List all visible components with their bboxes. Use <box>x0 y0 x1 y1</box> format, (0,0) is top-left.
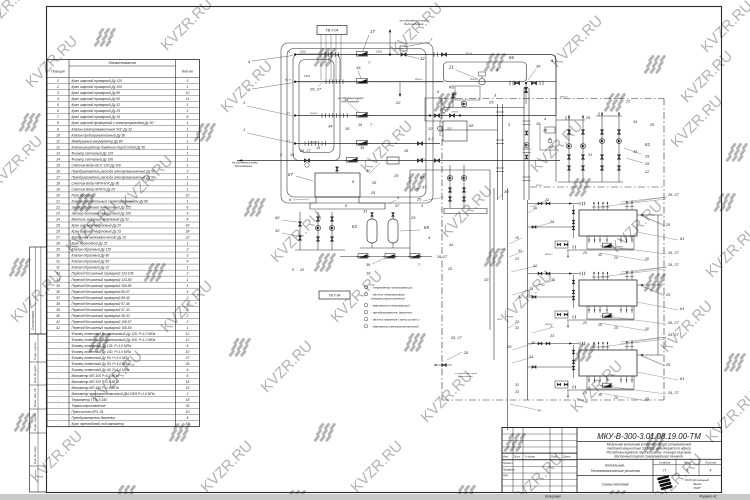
svg-text:8: 8 <box>57 121 59 125</box>
svg-text:Согласовано: Согласовано <box>31 311 35 330</box>
svg-text:1: 1 <box>187 121 189 125</box>
svg-text:34: 34 <box>328 124 333 129</box>
svg-text:18: 18 <box>56 181 60 185</box>
svg-text:41: 41 <box>533 264 537 268</box>
svg-text:22: 22 <box>185 236 190 240</box>
svg-text:4: 4 <box>544 117 546 121</box>
svg-text:3: 3 <box>187 254 189 258</box>
svg-text:Кран шаровой фланцевый с элек: Кран шаровой фланцевый с электроприводом… <box>72 121 154 125</box>
svg-text:К6: К6 <box>509 55 514 60</box>
svg-text:5: 5 <box>57 103 59 107</box>
svg-text:Ø89х3,5: Ø89х3,5 <box>469 79 478 81</box>
svg-text:Ø89х3,5: Ø89х3,5 <box>544 324 553 326</box>
svg-text:1: 1 <box>57 79 59 83</box>
svg-text:Ø108: Ø108 <box>499 249 506 251</box>
svg-text:Ø76х3: Ø76х3 <box>451 112 459 114</box>
svg-text:Ø76х3: Ø76х3 <box>535 185 543 187</box>
svg-text:Фланец ответный Воротниковый: Фланец ответный Воротниковый Ду 125, Р=1… <box>72 332 156 336</box>
svg-text:Дата: Дата <box>563 455 571 459</box>
svg-text:19: 19 <box>56 187 60 191</box>
svg-text:Изм.: Изм. <box>503 455 509 459</box>
svg-text:4: 4 <box>187 218 189 222</box>
svg-text:26, 27: 26, 27 <box>309 87 322 92</box>
svg-text:35: 35 <box>345 126 350 131</box>
svg-text:Счетчик Воды WPH-N-K Ду: Счетчик Воды WPH-N-K Ду 80 <box>72 181 120 185</box>
svg-text:33: 33 <box>507 344 512 349</box>
svg-text:Взам. инв. №: Взам. инв. № <box>33 388 37 407</box>
svg-text:25: 25 <box>451 91 457 96</box>
svg-text:24: 24 <box>528 287 533 291</box>
svg-text:20: 20 <box>644 257 649 261</box>
svg-text:25: 25 <box>665 363 671 367</box>
svg-text:Манометр электроконтактный Д: Манометр электроконтактный ДМ-2005 Р=1,0… <box>72 392 155 396</box>
svg-text:16: 16 <box>536 122 540 126</box>
svg-text:26: 26 <box>185 362 190 366</box>
svg-text:35: 35 <box>56 284 60 288</box>
svg-text:6: 6 <box>187 374 189 378</box>
svg-text:ГИП: ГИП <box>503 474 508 478</box>
svg-text:10: 10 <box>515 236 519 240</box>
svg-text:11: 11 <box>56 139 60 143</box>
svg-text:32: 32 <box>275 228 280 233</box>
svg-text:20: 20 <box>299 268 304 272</box>
svg-text:Водоснабжение: Водоснабжение <box>404 22 424 26</box>
svg-text:Переход бесшовный приварной: Переход бесшовный приварной 38-32 <box>72 314 130 318</box>
svg-text:35: 35 <box>551 278 555 282</box>
svg-text:2: 2 <box>186 272 189 276</box>
svg-text:Подп.: Подп. <box>551 455 558 459</box>
svg-text:15: 15 <box>56 163 60 167</box>
svg-text:10: 10 <box>186 91 190 95</box>
svg-text:Ø89х3,5: Ø89х3,5 <box>544 254 553 256</box>
svg-text:6: 6 <box>187 206 189 210</box>
svg-text:Затвор дисковый поворотный Ду: Затвор дисковый поворотный Ду 125 <box>72 206 132 210</box>
svg-text:20: 20 <box>644 397 649 401</box>
svg-text:Копировал: Копировал <box>545 494 561 498</box>
svg-text:13: 13 <box>56 151 60 155</box>
svg-text:1: 1 <box>243 100 245 105</box>
svg-text:Мембранный аккумулятор Ду 80: Мембранный аккумулятор Ду 80 <box>72 139 123 143</box>
svg-text:24: 24 <box>55 218 60 222</box>
svg-text:Лист: Лист <box>683 460 692 464</box>
svg-text:Клапан обратный Ду 80: Клапан обратный Ду 80 <box>72 254 110 258</box>
svg-text:1: 1 <box>187 175 189 179</box>
svg-text:2: 2 <box>186 314 189 318</box>
svg-text:7: 7 <box>57 115 59 119</box>
svg-text:31: 31 <box>588 153 592 157</box>
svg-text:4: 4 <box>187 302 189 306</box>
svg-text:35: 35 <box>598 253 602 257</box>
svg-text:30: 30 <box>56 254 60 258</box>
svg-text:1: 1 <box>187 326 189 330</box>
svg-text:31: 31 <box>518 295 522 299</box>
svg-text:К3: К3 <box>352 224 357 229</box>
svg-text:0,5х3: 0,5х3 <box>300 51 307 54</box>
svg-text:25: 25 <box>416 198 422 202</box>
svg-text:31: 31 <box>515 383 519 387</box>
svg-text:25: 25 <box>393 173 399 178</box>
svg-text:10: 10 <box>186 193 190 197</box>
svg-text:37: 37 <box>422 185 427 190</box>
svg-text:Стадия: Стадия <box>659 460 671 464</box>
svg-text:в 1 т: в 1 т <box>285 79 291 82</box>
svg-text:28: 28 <box>371 181 377 185</box>
svg-text:9: 9 <box>57 127 59 131</box>
svg-text:Затвор дисковый поворотный Ду: Затвор дисковый поворотный Ду 100 <box>72 212 132 216</box>
svg-text:1: 1 <box>187 133 189 137</box>
svg-text:10: 10 <box>56 133 60 137</box>
svg-text:К7: К7 <box>288 172 293 177</box>
svg-text:Клапан регулятор давления пере: Клапан регулятор давления перед собой Ду… <box>72 145 146 149</box>
svg-text:1: 1 <box>187 157 189 161</box>
svg-text:Позиция: Позиция <box>51 70 65 74</box>
svg-text:Водоснабжение: Водоснабжение <box>458 375 474 378</box>
svg-text:(термосопротивление): (термосопротивление) <box>371 297 405 301</box>
svg-text:1: 1 <box>187 151 189 155</box>
svg-text:Фильтр сетчатый Ду 125: Фильтр сетчатый Ду 125 <box>72 151 114 155</box>
svg-text:26, 27: 26, 27 <box>667 391 679 395</box>
svg-text:1: 1 <box>187 85 189 89</box>
svg-text:26, 27: 26, 27 <box>299 149 311 153</box>
svg-text:10: 10 <box>186 410 190 414</box>
svg-text:25: 25 <box>585 116 591 120</box>
svg-text:23: 23 <box>55 212 60 216</box>
svg-text:25: 25 <box>613 326 618 330</box>
svg-text:Водоснабжение: Водоснабжение <box>235 165 253 168</box>
svg-text:Наименование: Наименование <box>108 60 136 65</box>
svg-text:22: 22 <box>55 206 60 210</box>
svg-text:30: 30 <box>504 189 509 194</box>
svg-text:Ø133х4: Ø133х4 <box>309 141 318 144</box>
svg-text:42: 42 <box>56 326 60 330</box>
svg-text:21: 21 <box>448 65 454 70</box>
svg-text:38: 38 <box>549 145 553 149</box>
svg-text:25: 25 <box>582 251 587 255</box>
svg-text:23: 23 <box>544 198 549 202</box>
svg-text:16: 16 <box>356 65 361 70</box>
svg-text:Лист: Лист <box>513 455 522 459</box>
svg-text:Кран шаровой муфтовый Ду 15: Кран шаровой муфтовый Ду 15 <box>72 230 122 234</box>
svg-text:Кран шаровой приварной Ду 125: Кран шаровой приварной Ду 125 <box>72 79 123 83</box>
svg-text:Кран переходной Ду 25: Кран переходной Ду 25 <box>72 242 108 246</box>
svg-text:Воздушник автоматический Ду: Воздушник автоматический Ду 15 <box>72 236 127 240</box>
svg-text:Ø57х3: Ø57х3 <box>465 53 473 55</box>
svg-text:24: 24 <box>549 220 554 224</box>
svg-text:Манометр МП-100 Р=1,0 МПа: Манометр МП-100 Р=1,0 МПа <box>72 380 119 384</box>
svg-text:1: 1 <box>187 284 189 288</box>
svg-text:35: 35 <box>531 341 535 345</box>
svg-text:Манометр МП-160 Р=1,0 МПа: Манометр МП-160 Р=1,0 МПа <box>72 386 119 390</box>
svg-text:1: 1 <box>187 103 189 107</box>
svg-text:39: 39 <box>56 308 60 312</box>
svg-text:16: 16 <box>344 97 349 102</box>
svg-text:Фланец ответный Ду 80, Р=1: Фланец ответный Ду 80, Р=1,0 МПа <box>72 356 130 360</box>
svg-text:28: 28 <box>55 242 60 246</box>
svg-text:25: 25 <box>644 162 650 166</box>
svg-text:35: 35 <box>533 206 537 210</box>
svg-text:11: 11 <box>366 169 370 173</box>
svg-text:28: 28 <box>185 230 190 234</box>
svg-text:Преобразователь расхода элек: Преобразователь расхода электромагнитный… <box>72 169 155 173</box>
svg-text:20: 20 <box>644 327 649 331</box>
svg-text:2: 2 <box>186 392 189 396</box>
svg-text:Кран шаровой приварной Ду 100: Кран шаровой приварной Ду 100 <box>72 85 123 89</box>
svg-text:12: 12 <box>420 56 425 61</box>
svg-text:Клапан смесительный с электр: Клапан смесительный с электроприводом Ду… <box>72 200 149 204</box>
svg-text:Кран шаровой приварной Ду 50: Кран шаровой приварной Ду 50 <box>72 97 121 101</box>
svg-text:25: 25 <box>613 256 618 260</box>
svg-text:3: 3 <box>57 91 59 95</box>
svg-text:Кран трехходовой под маноме: Кран трехходовой под манометр <box>72 422 124 426</box>
svg-text:К5: К5 <box>420 175 425 180</box>
svg-text:2: 2 <box>56 85 59 89</box>
svg-text:Инв. № дубл.: Инв. № дубл. <box>33 364 37 383</box>
svg-text:25: 25 <box>582 321 587 325</box>
svg-text:17: 17 <box>370 29 375 34</box>
svg-text:23: 23 <box>549 334 554 338</box>
svg-text:Подп. и дата: Подп. и дата <box>33 413 37 431</box>
svg-text:6: 6 <box>345 204 347 208</box>
svg-text:42: 42 <box>186 224 190 228</box>
svg-text:0,5х3: 0,5х3 <box>376 51 383 54</box>
svg-text:Переход бесшовный приварной: Переход бесшовный приварной 108-89 <box>72 284 132 288</box>
svg-text:11: 11 <box>186 97 190 101</box>
svg-text:2: 2 <box>186 109 189 113</box>
svg-text:Переход бесшовный приварной: Переход бесшовный приварной 89-45 <box>72 296 130 300</box>
svg-text:0,5х3: 0,5х3 <box>304 75 311 78</box>
svg-text:Котельная.: Котельная. <box>605 464 625 468</box>
svg-text:4: 4 <box>57 97 59 101</box>
svg-text:- манометр электроконтактный: - манометр электроконтактный <box>371 325 419 329</box>
svg-text:6: 6 <box>187 344 189 348</box>
svg-text:21: 21 <box>55 200 60 204</box>
svg-text:Клапан электромагнитный “НЗ”: Клапан электромагнитный “НЗ” Ду 32 <box>72 127 133 131</box>
svg-text:8: 8 <box>187 416 189 420</box>
svg-text:К1: К1 <box>680 236 685 241</box>
svg-text:Фильтр сетчатый Ду 100: Фильтр сетчатый Ду 100 <box>72 157 114 161</box>
svg-text:12: 12 <box>186 332 190 336</box>
svg-text:16: 16 <box>56 169 60 173</box>
svg-text:35: 35 <box>598 393 602 397</box>
svg-text:Проверил: Проверил <box>503 467 515 471</box>
svg-text:4: 4 <box>187 290 189 294</box>
svg-text:Переход бесшовный приварной: Переход бесшовный приварной 108-89 <box>72 326 132 330</box>
svg-text:Прессостат КРL-35: Прессостат КРL-35 <box>72 410 104 414</box>
svg-text:1: 1 <box>187 187 189 191</box>
svg-text:Счетчик Воды ВСХ -100 Ду: Счетчик Воды ВСХ -100 Ду 100 <box>72 163 121 167</box>
svg-text:Переход бесшовный приварной: Переход бесшовный приварной 57-45 <box>72 302 130 306</box>
svg-text:Формат А2: Формат А2 <box>699 494 717 498</box>
svg-text:1: 1 <box>187 242 189 246</box>
svg-text:29: 29 <box>644 155 650 159</box>
svg-text:4: 4 <box>710 469 712 473</box>
svg-text:14: 14 <box>290 153 294 157</box>
svg-text:25: 25 <box>410 215 416 220</box>
svg-text:5: 5 <box>292 268 294 272</box>
svg-text:Листов: Листов <box>704 460 716 464</box>
svg-text:25: 25 <box>488 100 494 105</box>
svg-text:Преобразователь давления: Преобразователь давления <box>72 416 116 420</box>
svg-text:Реле протока: Реле протока <box>72 193 94 197</box>
svg-text:Ø89х3,5: Ø89х3,5 <box>414 79 423 81</box>
svg-text:10: 10 <box>186 350 190 354</box>
svg-text:37: 37 <box>56 296 60 300</box>
svg-text:1: 1 <box>187 200 189 204</box>
svg-text:26, 27: 26, 27 <box>667 251 679 255</box>
svg-text:1: 1 <box>187 266 189 270</box>
svg-text:25: 25 <box>649 123 655 127</box>
svg-text:- манометр показывающий: - манометр показывающий <box>371 304 410 308</box>
svg-text:3: 3 <box>187 169 189 173</box>
svg-text:14: 14 <box>56 157 60 161</box>
svg-text:Переход бесшовный приварной: Переход бесшовный приварной 133-108 <box>72 272 134 276</box>
svg-text:33: 33 <box>56 272 60 276</box>
svg-text:31: 31 <box>363 210 367 214</box>
svg-text:18: 18 <box>186 398 190 402</box>
svg-text:32: 32 <box>56 266 60 270</box>
svg-text:4 2: 4 2 <box>428 136 434 141</box>
svg-text:8: 8 <box>187 115 189 119</box>
svg-text:1: 1 <box>187 163 189 167</box>
svg-text:Инв. № подл.: Инв. № подл. <box>33 445 37 464</box>
svg-text:2: 2 <box>186 296 189 300</box>
svg-text:Преобразователь расхода элек: Преобразователь расхода электромагнитный… <box>72 175 155 179</box>
svg-text:Кран шаровой приварной Ду 25: Кран шаровой приварной Ду 25 <box>72 109 121 113</box>
svg-text:- преобразователь давления: - преобразователь давления <box>371 311 412 315</box>
svg-text:На собственные нужды: На собственные нужды <box>232 162 258 165</box>
svg-text:Кран шаровой приварной Ду 15: Кран шаровой приварной Ду 15 <box>72 115 121 119</box>
svg-text:15: 15 <box>186 386 190 390</box>
svg-text:К9: К9 <box>424 225 429 230</box>
svg-text:Восточный портал Северомуйског: Восточный портал Северомуйского тоннеля. <box>615 455 684 459</box>
svg-text:17: 17 <box>56 175 60 179</box>
svg-text:Ø57х3: Ø57х3 <box>419 159 427 161</box>
svg-text:13: 13 <box>428 126 433 131</box>
svg-text:1: 1 <box>187 127 189 131</box>
svg-text:57: 57 <box>186 422 190 426</box>
svg-text:Кран шаровой приварной Ду 32: Кран шаровой приварной Ду 32 <box>72 103 121 107</box>
svg-text:33: 33 <box>515 326 519 330</box>
svg-text:“РЭП”: “РЭП” <box>693 486 702 490</box>
svg-text:1: 1 <box>243 127 245 132</box>
svg-text:31: 31 <box>518 249 522 253</box>
svg-text:1: 1 <box>187 278 189 282</box>
svg-text:23: 23 <box>514 390 519 394</box>
svg-text:35: 35 <box>598 323 602 327</box>
svg-text:18: 18 <box>186 380 190 384</box>
svg-text:40: 40 <box>56 314 60 318</box>
svg-text:Манометр МП-100 Р=0,6 МПа: Манометр МП-100 Р=0,6 МПа <box>72 374 119 378</box>
svg-text:44-: 44- <box>449 243 455 247</box>
svg-text:27: 27 <box>55 236 60 240</box>
svg-text:35: 35 <box>186 404 190 408</box>
svg-text:на собственные нужды: на собственные нужды <box>455 372 478 375</box>
svg-text:22: 22 <box>625 100 631 104</box>
svg-text:4: 4 <box>187 260 189 264</box>
svg-text:34: 34 <box>633 120 637 124</box>
svg-text:Термосопротивление: Термосопротивление <box>72 404 106 408</box>
svg-text:К1: К1 <box>680 306 685 311</box>
svg-text:25: 25 <box>413 187 419 192</box>
svg-text:29: 29 <box>55 248 60 252</box>
svg-text:26, 27: 26, 27 <box>667 193 679 197</box>
svg-text:Ø133х4: Ø133х4 <box>309 112 318 115</box>
svg-text:38: 38 <box>56 302 60 306</box>
svg-text:- термометр показывающий: - термометр показывающий <box>371 286 413 290</box>
svg-text:40: 40 <box>275 215 280 220</box>
svg-text:Кол-во: Кол-во <box>182 70 193 74</box>
svg-text:36: 36 <box>536 64 541 69</box>
svg-text:Фланец ответный Ду 100, Р=: Фланец ответный Ду 100, Р=1,0 МПа <box>72 350 131 354</box>
svg-text:Тепломеханические решения: Тепломеханические решения <box>590 469 639 473</box>
svg-text:23: 23 <box>514 257 519 261</box>
svg-text:Переход бесшовный приварной: Переход бесшовный приварной 57-32 <box>72 308 130 312</box>
svg-text:Переход бесшовный приварной: Переход бесшовный приварной 108-57 <box>72 320 132 324</box>
svg-text:20: 20 <box>55 193 60 197</box>
svg-text:1: 1 <box>187 139 189 143</box>
svg-text:Клапан обратный Ду 32: Клапан обратный Ду 32 <box>72 266 110 270</box>
svg-text:ТВ-У-04: ТВ-У-04 <box>329 294 341 298</box>
svg-text:34: 34 <box>56 278 60 282</box>
svg-text:25: 25 <box>447 267 452 271</box>
svg-text:Переход бесшовный приварной: Переход бесшовный приварной 89-57 <box>72 290 130 294</box>
svg-text:1: 1 <box>187 181 189 185</box>
svg-text:6: 6 <box>57 109 59 113</box>
svg-text:4: 4 <box>187 212 189 216</box>
svg-text:Переход бесшовный приварной: Переход бесшовный приварной 133-89 <box>72 278 132 282</box>
svg-text:Кран шаровой муфтовый Ду 20: Кран шаровой муфтовый Ду 20 <box>72 224 122 228</box>
svg-text:на собственные нужды: на собственные нужды <box>400 19 429 23</box>
svg-text:25: 25 <box>55 224 60 228</box>
svg-text:Ø89х3,5: Ø89х3,5 <box>559 97 568 99</box>
svg-text:К1: К1 <box>680 376 685 381</box>
svg-text:4: 4 <box>428 236 430 240</box>
svg-text:25: 25 <box>613 396 618 400</box>
svg-text:Фланец ответный Воротниковый: Фланец ответный Воротниковый Ду 100, Р=1… <box>72 338 156 342</box>
svg-text:27: 27 <box>185 356 190 360</box>
svg-text:Подп. и дата: Подп. и дата <box>33 342 37 360</box>
svg-text:31: 31 <box>56 260 60 264</box>
svg-text:25: 25 <box>582 391 587 395</box>
svg-text:25: 25 <box>370 191 376 195</box>
svg-text:12: 12 <box>56 145 60 149</box>
svg-text:1: 1 <box>187 145 189 149</box>
svg-text:4: 4 <box>687 469 689 473</box>
svg-text:2: 2 <box>186 308 189 312</box>
svg-text:Проект: Проект <box>503 461 513 465</box>
svg-text:Клапан предохранительный Ду 5: Клапан предохранительный Ду 50 <box>72 133 126 137</box>
svg-text:26, 27: 26, 27 <box>450 336 462 340</box>
svg-text:Кран шаровой приварной Ду 80: Кран шаровой приварной Ду 80 <box>72 91 121 95</box>
svg-text:ТВ-У-04: ТВ-У-04 <box>326 29 339 33</box>
svg-text:Схема тепловая: Схема тепловая <box>602 483 629 487</box>
svg-text:4: 4 <box>187 368 189 372</box>
svg-text:33: 33 <box>484 277 489 282</box>
svg-text:24: 24 <box>528 355 533 359</box>
svg-text:25: 25 <box>665 223 671 227</box>
svg-text:41: 41 <box>56 320 60 324</box>
svg-text:2: 2 <box>186 248 189 252</box>
svg-text:Вентиль запорный муфтовый: Вентиль запорный муфтовый Ду 32 <box>72 218 130 222</box>
svg-text:Фланец ответный Ду 40, Р=1: Фланец ответный Ду 40, Р=1,0 МПа <box>72 368 130 372</box>
svg-text:22: 22 <box>644 170 650 174</box>
svg-text:Ø108: Ø108 <box>496 319 503 321</box>
svg-text:Фланец ответный Ду 50, Р=1: Фланец ответный Ду 50, Р=1,0 МПа <box>72 362 130 366</box>
svg-text:36: 36 <box>56 290 60 294</box>
svg-text:22: 22 <box>395 100 401 105</box>
svg-text:12: 12 <box>186 338 190 342</box>
svg-text:3: 3 <box>187 79 189 83</box>
